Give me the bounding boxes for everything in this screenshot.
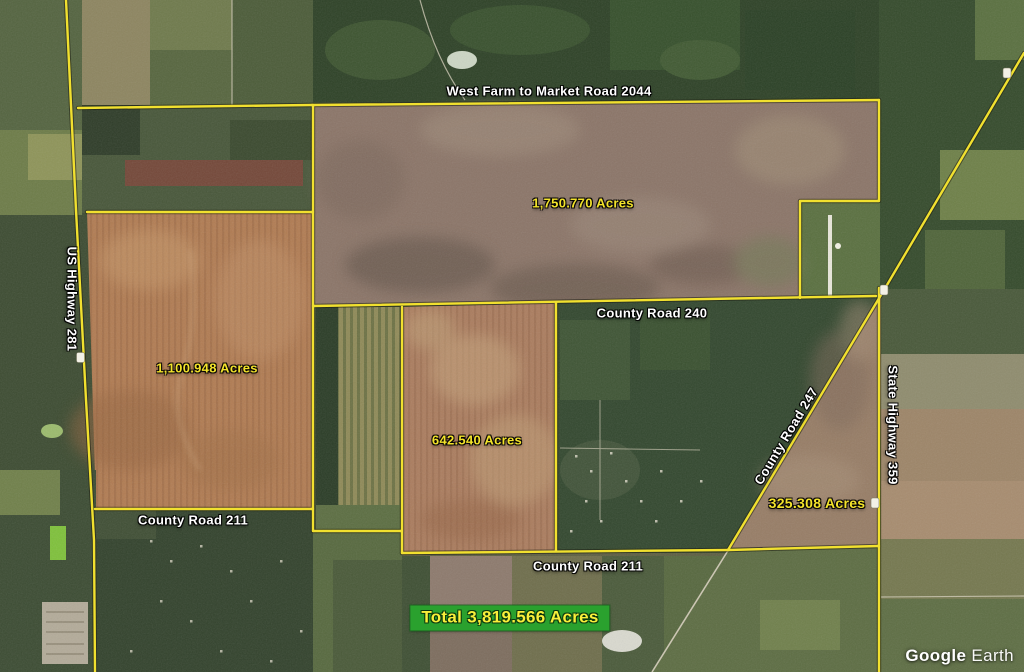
satellite-imagery <box>0 0 1024 672</box>
google-earth-watermark: GoogleEarth <box>905 646 1014 666</box>
watermark-google: Google <box>905 646 966 665</box>
google-earth-map-view[interactable]: West Farm to Market Road 2044 US Highway… <box>0 0 1024 672</box>
watermark-earth: Earth <box>971 646 1014 665</box>
total-acreage-badge: Total 3,819.566 Acres <box>410 606 609 631</box>
